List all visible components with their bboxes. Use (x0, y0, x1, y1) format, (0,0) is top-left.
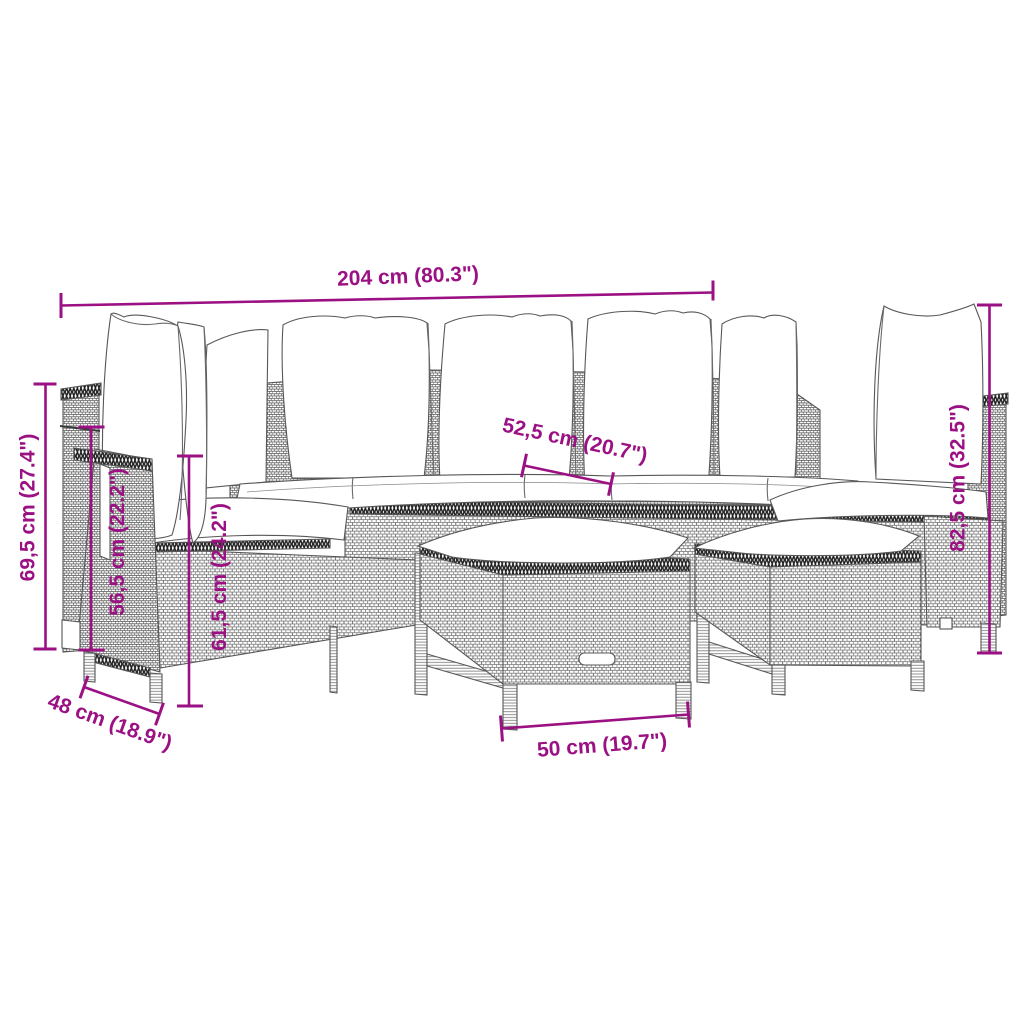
svg-text:204 cm (80.3"): 204 cm (80.3") (337, 262, 480, 290)
svg-text:56,5 cm (22.2"): 56,5 cm (22.2") (106, 468, 129, 616)
svg-text:50 cm (19.7"): 50 cm (19.7") (536, 729, 668, 762)
svg-text:69,5 cm (27.4"): 69,5 cm (27.4") (17, 434, 40, 582)
svg-text:61,5 cm (24.2"): 61,5 cm (24.2") (208, 503, 231, 651)
svg-text:82,5 cm (32.5"): 82,5 cm (32.5") (947, 404, 970, 552)
